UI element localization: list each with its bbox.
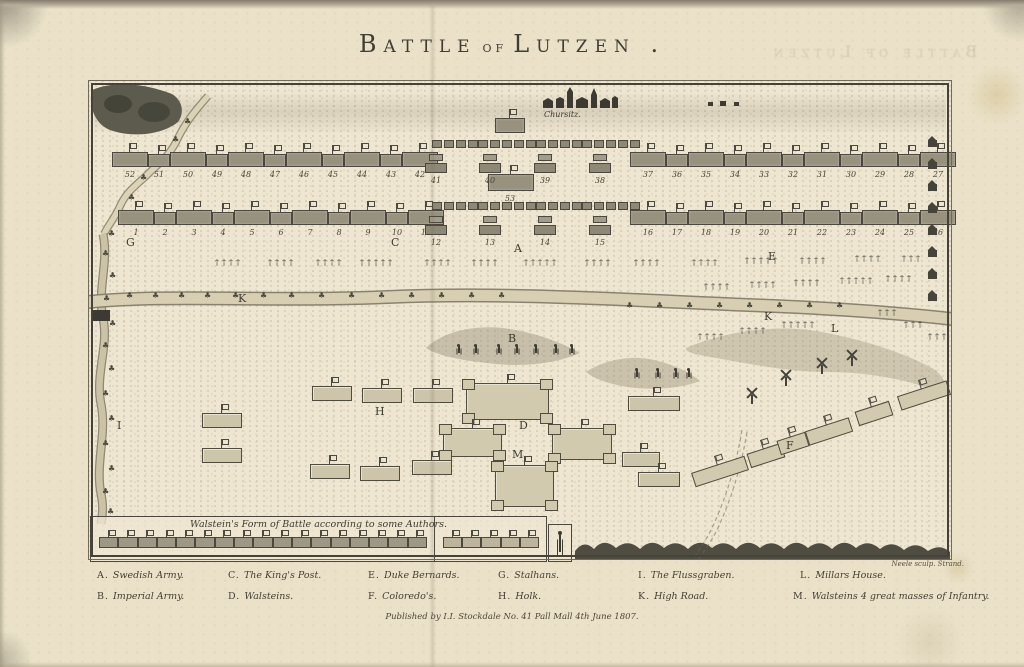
column-pair-unit: 38 [587, 154, 613, 185]
bastion-corner [540, 379, 553, 390]
pair-top-block [593, 154, 607, 161]
unit-block [746, 210, 782, 225]
unit-block [206, 154, 228, 167]
unit-number: 15 [595, 238, 605, 247]
unit-cell: 17 [666, 200, 688, 237]
bastion-corner [603, 453, 616, 464]
unit-cell: 49 [206, 142, 228, 179]
legend-key: G. [498, 570, 510, 581]
unit-number: 29 [875, 170, 885, 179]
unit-cell: 4 [212, 200, 234, 237]
unit-block [840, 154, 862, 167]
unit-block [898, 212, 920, 225]
column-pair-unit: 41 [423, 154, 449, 185]
tree-row: †††† [704, 282, 732, 291]
flag-icon [792, 203, 800, 213]
unit-cell: 36 [666, 142, 688, 179]
unit-number: 37 [643, 170, 653, 179]
flag-icon [166, 530, 174, 538]
infantry-block [312, 386, 352, 401]
tree-row: †††† [740, 326, 768, 335]
bastion-corner [540, 413, 553, 424]
unit-number: 39 [540, 176, 550, 185]
pair-top-block [593, 216, 607, 223]
flag-icon [763, 201, 771, 211]
unit-block [176, 210, 212, 225]
unit-number: 44 [357, 170, 367, 179]
legend-key: E. [368, 570, 380, 581]
tree-row: ††† [904, 320, 925, 329]
map-letter-D: D [519, 419, 529, 432]
unit-number: 5 [249, 228, 254, 237]
unit-number: 20 [759, 228, 769, 237]
flag-icon [281, 530, 289, 538]
tree-row: †††† [855, 254, 883, 263]
small-square-unit [618, 140, 628, 148]
unit-number: 13 [485, 238, 495, 247]
legend-key: L. [800, 570, 811, 581]
unit-cell: 32 [782, 142, 804, 179]
bastion-corner [545, 461, 558, 472]
legend-name: Stalhans. [514, 570, 559, 581]
flag-icon [135, 201, 143, 211]
flag-icon [378, 530, 386, 538]
flag-icon [705, 143, 713, 153]
flag-icon [452, 530, 460, 538]
flag-icon [187, 143, 195, 153]
unit-cell: 52 [112, 142, 148, 179]
unit-number: 48 [241, 170, 251, 179]
map-letter-F: F [786, 439, 795, 452]
unit-block [292, 210, 328, 225]
unit-block [350, 210, 386, 225]
inset-unit-block [273, 537, 292, 548]
tree-row: †††† [886, 274, 914, 283]
inset-unit-block [462, 537, 481, 548]
bush-icon: ♣ [109, 320, 116, 328]
flag-icon [471, 530, 479, 538]
unit-number: 43 [386, 170, 396, 179]
town-building-icon [928, 162, 937, 169]
forest-shade [104, 95, 132, 113]
square-group [536, 140, 582, 148]
bush-icon: ♣ [108, 415, 115, 423]
unit-block [782, 212, 804, 225]
unit-cell: 25 [898, 200, 920, 237]
small-square-unit [618, 202, 628, 210]
tree-row: †††† [750, 280, 778, 289]
flag-icon [301, 530, 309, 538]
town-building-icon [928, 294, 937, 301]
tree-row: †††† [794, 278, 822, 287]
inset-unit-block [369, 537, 388, 548]
small-square-unit [582, 140, 592, 148]
unit-block [286, 152, 322, 167]
map-letter-H: H [375, 405, 386, 418]
flag-icon [146, 530, 154, 538]
unit-cell: 46 [286, 142, 322, 179]
column-pair-unit: 13 [477, 216, 503, 247]
flag-icon [361, 143, 369, 153]
unit-number: 7 [307, 228, 312, 237]
unit-cell: 35 [688, 142, 724, 179]
flag-icon [129, 143, 137, 153]
bush-icon: ♣ [108, 230, 115, 238]
square-group [478, 140, 536, 148]
unit-block [228, 152, 264, 167]
infantry-block [638, 472, 680, 487]
scale-figure-box [548, 524, 572, 562]
unit-block [270, 212, 292, 225]
unit-number: 49 [212, 170, 222, 179]
flag-icon [164, 203, 172, 213]
flag-icon [850, 145, 858, 155]
flag-icon [280, 203, 288, 213]
unit-number: 47 [270, 170, 280, 179]
tree-row: †††† [215, 258, 243, 267]
flag-icon [676, 203, 684, 213]
town-building-icon [928, 184, 937, 191]
bastion-corner [493, 450, 506, 461]
unit-number: 18 [701, 228, 711, 237]
inset-unit-block [350, 537, 369, 548]
unit-block [666, 212, 688, 225]
small-square-unit [594, 140, 604, 148]
village-silhouette [543, 87, 739, 108]
unit-cell: 44 [344, 142, 380, 179]
square-group [432, 140, 478, 148]
bush-icon: ♣ [806, 302, 813, 310]
flag-icon [734, 203, 742, 213]
legend-name: The Flussgraben. [651, 570, 735, 581]
flag-icon [937, 201, 945, 211]
unit-cell: 3 [176, 200, 212, 237]
unit-number: 28 [904, 170, 914, 179]
flag-icon [320, 530, 328, 538]
flag-icon [509, 530, 517, 538]
tree-row: ††††† [840, 276, 875, 285]
infantry-block [202, 413, 242, 428]
unit-cell: 6 [270, 200, 292, 237]
legend-key: F. [368, 591, 378, 602]
unit-number: 17 [672, 228, 682, 237]
bush-icon: ♣ [746, 302, 753, 310]
unit-block [148, 154, 170, 167]
legend-key: B. [97, 591, 109, 602]
unit-cell: 5 [234, 200, 270, 237]
tree-row: ††† [902, 254, 923, 263]
unit-block [212, 212, 234, 225]
flag-icon [193, 201, 201, 211]
map-letter-E: E [768, 250, 777, 263]
inset-unit-block [443, 537, 462, 548]
bush-icon: ♣ [260, 292, 267, 300]
flag-icon [705, 201, 713, 211]
legend-name: Millars House. [815, 570, 886, 581]
soldier-figure-icon [513, 344, 519, 354]
bush-icon: ♣ [378, 292, 385, 300]
unit-cell: 50 [170, 142, 206, 179]
windmill-icon [744, 386, 760, 406]
map-letter-C: C [391, 236, 400, 249]
small-square-unit [490, 202, 500, 210]
unit-number: 27 [933, 170, 943, 179]
inset-unit-block [481, 537, 500, 548]
center-ridge-east [586, 358, 700, 389]
unit-block [862, 152, 898, 167]
inset-unit-block [520, 537, 539, 548]
unit-block [386, 212, 408, 225]
bush-icon: ♣ [102, 390, 109, 398]
soldier-figure-icon [633, 368, 639, 378]
unit-block [862, 210, 898, 225]
pair-bottom-block [534, 225, 556, 235]
tree-row: ††††† [360, 258, 395, 267]
unit-block [840, 212, 862, 225]
unit-row-imperial-right: 3736353433323130292827 [630, 142, 924, 179]
unit-cell: 8 [328, 200, 350, 237]
soldier-figure-icon [654, 368, 660, 378]
unit-number: 6 [278, 228, 283, 237]
unit-block [154, 212, 176, 225]
unit-cell: 27 [920, 142, 956, 179]
unit-number: 35 [701, 170, 711, 179]
square-group [536, 202, 582, 210]
small-square-unit [606, 140, 616, 148]
town-building-icon [928, 206, 937, 213]
tree-row: †††† [472, 258, 500, 267]
map-letter-M: M [512, 448, 524, 461]
small-square-unit [456, 202, 466, 210]
unit-number: 9 [365, 228, 370, 237]
unit-number: 22 [817, 228, 827, 237]
town-building-icon [928, 228, 937, 235]
soldier-figure-icon [495, 344, 501, 354]
town-building-icon [928, 272, 937, 279]
legend-name: Walsteins. [244, 591, 293, 602]
unit-cell: 18 [688, 200, 724, 237]
flag-icon [879, 201, 887, 211]
unit-number: 30 [846, 170, 856, 179]
legend-key: I. [638, 570, 647, 581]
legend-entry-H: H.Holk. [498, 591, 541, 602]
small-square-unit [526, 202, 536, 210]
small-square-unit [536, 140, 546, 148]
unit-number: 21 [788, 228, 798, 237]
unit-cell: 21 [782, 200, 804, 237]
tree-row: †††† [698, 332, 726, 341]
column-pair-unit: 15 [587, 216, 613, 247]
bush-icon: ♣ [288, 292, 295, 300]
small-square-unit [514, 202, 524, 210]
map-letter-K: K [238, 292, 247, 305]
pair-top-block [483, 154, 497, 161]
unit-block [322, 154, 344, 167]
infantry-block [310, 464, 350, 479]
inset-units-left [99, 537, 427, 548]
town-building-icon [928, 140, 937, 147]
flag-icon [390, 145, 398, 155]
small-square-unit [514, 140, 524, 148]
flag-icon [734, 145, 742, 155]
flag-icon [397, 530, 405, 538]
column-pair-unit: 39 [532, 154, 558, 185]
inset-unit-block [176, 537, 195, 548]
unit-cell: 20 [746, 200, 782, 237]
bastion-mass-block [443, 428, 502, 457]
flag-icon [108, 530, 116, 538]
bastion-corner [545, 500, 558, 511]
pair-bottom-block [479, 163, 501, 173]
legend-entry-L: L.Millars House. [800, 570, 886, 581]
flag-icon [245, 143, 253, 153]
bastion-mass-block [495, 465, 554, 507]
bush-icon: ♣ [102, 250, 109, 258]
unit-block [380, 154, 402, 167]
unit-number: 31 [817, 170, 827, 179]
unit-row-imperial-left: 5251504948474645444342 [112, 142, 428, 179]
unit-number: 46 [299, 170, 309, 179]
unit-cell: 29 [862, 142, 898, 179]
field-track [693, 430, 742, 559]
inset-unit-block [388, 537, 407, 548]
legend-entry-E: E.Duke Bernards. [368, 570, 460, 581]
pair-bottom-block [479, 225, 501, 235]
unit-cell: 10 [386, 200, 408, 237]
bastion-corner [548, 424, 561, 435]
flag-icon [216, 145, 224, 155]
flag-icon [204, 530, 212, 538]
unit-block [920, 210, 956, 225]
stream-bridge [92, 310, 110, 321]
legend-key: K. [638, 591, 650, 602]
small-square-unit [456, 140, 466, 148]
inset-unit-block [138, 537, 157, 548]
unit-number: 45 [328, 170, 338, 179]
bush-icon: ♣ [108, 365, 115, 373]
flag-icon [528, 530, 536, 538]
flag-icon [396, 203, 404, 213]
legend-entry-D: D.Walsteins. [228, 591, 293, 602]
legend-name: Swedish Army. [113, 570, 184, 581]
small-square-unit [548, 140, 558, 148]
unit-block [630, 152, 666, 167]
tree-row: †††† [800, 256, 828, 265]
publication-imprint: Published by I.I. Stockdale No. 41 Pall … [0, 612, 1024, 622]
infantry-block [202, 448, 242, 463]
flag-icon [937, 143, 945, 153]
infantry-block [362, 388, 402, 403]
inset-units-right [443, 537, 539, 548]
skirmisher-squares-swedish-center [432, 202, 624, 210]
pair-top-block [538, 154, 552, 161]
title-word-lutzen: Lutzen . [513, 30, 665, 58]
square-group [432, 202, 478, 210]
bush-icon: ♣ [109, 272, 116, 280]
unit-number: 23 [846, 228, 856, 237]
legend-entry-F: F.Coloredo's. [368, 591, 436, 602]
small-square-unit [560, 202, 570, 210]
skirmisher-squares-imperial-center [432, 140, 624, 148]
unit-number: 32 [788, 170, 798, 179]
bastion-mass-block [552, 428, 612, 460]
windmill-post [785, 377, 787, 386]
unit-block [688, 152, 724, 167]
flag-icon [879, 143, 887, 153]
infantry-block [622, 452, 660, 467]
engraved-map-page: Battle of Lutzen BattleofLutzen . 525150… [0, 0, 1024, 667]
unit-cell: 33 [746, 142, 782, 179]
small-square-unit [536, 202, 546, 210]
flag-icon [332, 145, 340, 155]
flag-icon [821, 143, 829, 153]
engraver-credit: Neele sculp. Strand. [848, 560, 964, 568]
pair-bottom-block [589, 163, 611, 173]
flag-icon [416, 530, 424, 538]
flag-icon [908, 203, 916, 213]
unit-block [724, 154, 746, 167]
legend-entry-B: B.Imperial Army. [97, 591, 184, 602]
soldier-figure-icon [455, 344, 461, 354]
flag-icon [223, 530, 231, 538]
legend-entry-A: A.Swedish Army. [97, 570, 184, 581]
tree-row: †††† [585, 258, 613, 267]
unit-number: 50 [183, 170, 193, 179]
windmill-post [751, 395, 753, 404]
column-pair-unit: 12 [423, 216, 449, 247]
bush-icon: ♣ [126, 292, 133, 300]
soldier-figure-icon [685, 368, 691, 378]
page-edge-top [0, 0, 1024, 9]
windmill-post [821, 365, 823, 374]
bush-icon: ♣ [103, 295, 110, 303]
small-square-unit [572, 202, 582, 210]
small-square-unit [502, 202, 512, 210]
tree-row: ††††† [782, 320, 817, 329]
unit-number: 34 [730, 170, 740, 179]
map-letter-A: A [514, 242, 523, 255]
windmill-icon [814, 356, 830, 376]
unit-number: 19 [730, 228, 740, 237]
soldier-figure-icon [556, 531, 564, 555]
legend-name: Holk. [515, 591, 541, 602]
bastion-mass-block [466, 383, 549, 420]
bush-icon: ♣ [716, 302, 723, 310]
square-group [582, 140, 640, 148]
unit-cell: 30 [840, 142, 862, 179]
inset-unit-block [195, 537, 214, 548]
soldier-figure-icon [532, 344, 538, 354]
page-edge-left [0, 0, 5, 667]
windmill-post [851, 357, 853, 366]
village-label: Chursitz. [544, 110, 581, 119]
legend-key: D. [228, 591, 240, 602]
bush-icon: ♣ [348, 292, 355, 300]
small-square-unit [630, 140, 640, 148]
bush-icon: ♣ [102, 342, 109, 350]
page-edge-bottom [0, 662, 1024, 667]
small-square-unit [478, 140, 488, 148]
unit-number: 51 [154, 170, 164, 179]
flag-icon [359, 530, 367, 538]
small-square-unit [582, 202, 592, 210]
unit-block [112, 152, 148, 167]
flag-icon [303, 143, 311, 153]
small-square-unit [548, 202, 558, 210]
flag-icon [647, 201, 655, 211]
flag-icon [274, 145, 282, 155]
small-square-unit [502, 140, 512, 148]
